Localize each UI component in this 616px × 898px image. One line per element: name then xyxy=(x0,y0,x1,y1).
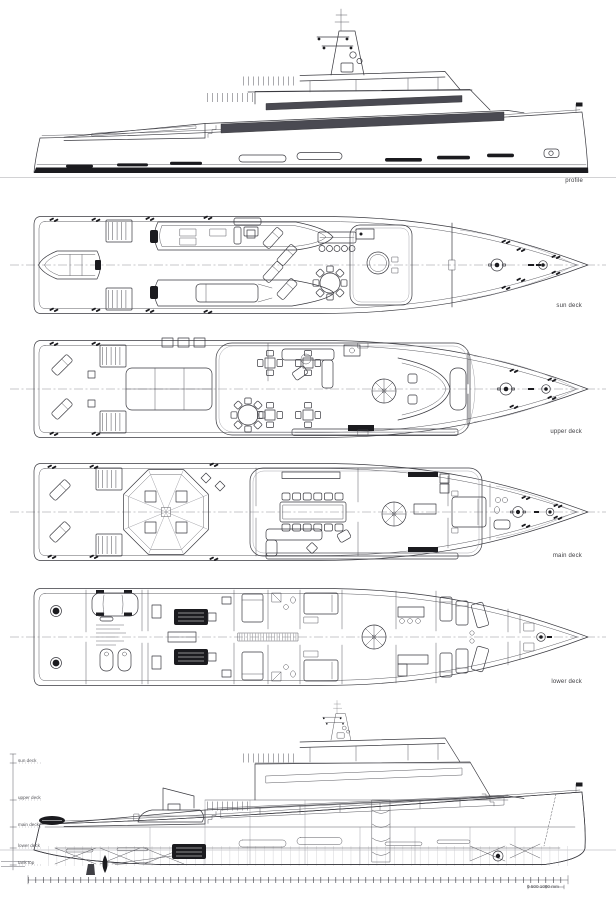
lower-deck-label: lower deck xyxy=(551,679,582,685)
deck-level-main: main deck xyxy=(18,822,39,827)
ga-drawing xyxy=(0,0,616,898)
sun-deck-plan xyxy=(10,214,606,316)
main-deck-label: main deck xyxy=(553,553,582,559)
ga-sheet: profile sun deck upper deck main deck lo… xyxy=(0,0,616,898)
profile-view xyxy=(0,9,616,178)
lower-deck-plan xyxy=(10,589,606,686)
sun-deck-label: sun deck xyxy=(556,303,582,309)
deck-level-upper: upper deck xyxy=(18,795,41,800)
profile-label: profile xyxy=(565,178,583,184)
deck-level-lower: lower deck xyxy=(18,843,40,848)
scale-bar-label: 0 500 1000 mm xyxy=(527,884,559,889)
upper-deck-plan xyxy=(10,338,606,438)
deck-level-sun: sun deck xyxy=(18,758,36,763)
main-deck-plan xyxy=(10,461,606,563)
arrangement-profile-view xyxy=(0,700,616,889)
upper-deck-label: upper deck xyxy=(550,429,582,435)
deck-level-tank: tank top xyxy=(18,860,34,865)
